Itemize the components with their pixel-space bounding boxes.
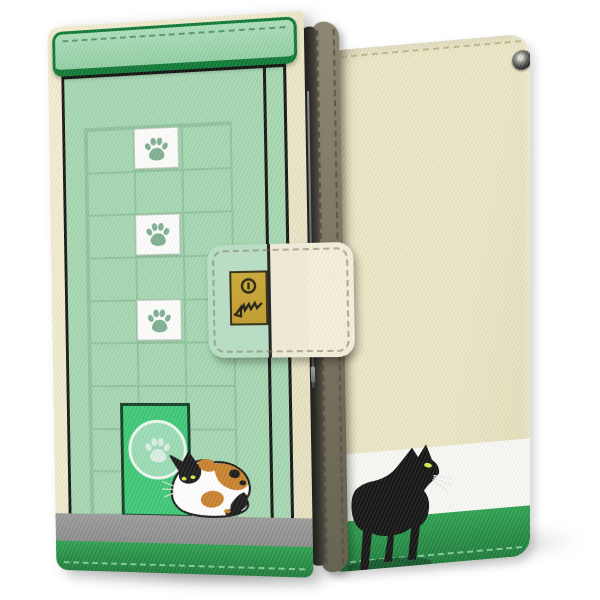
back-stitch-line [341, 40, 521, 58]
paw-print-icon [144, 305, 174, 335]
paw-print-icon [141, 133, 171, 164]
clasp-strap [207, 242, 355, 358]
strap-eyelet [512, 49, 530, 71]
black-cat-illustration [348, 430, 452, 572]
calico-cat-illustration [161, 443, 253, 520]
front-hem-stitch [64, 561, 305, 570]
paw-window [135, 213, 180, 255]
back-case [332, 33, 530, 572]
paw-window [137, 300, 182, 341]
power-button [311, 366, 315, 382]
black-cat-silhouette [351, 443, 439, 572]
clasp-stitch [212, 247, 350, 353]
paw-window [134, 127, 179, 170]
front-case [47, 8, 348, 579]
paw-print-icon [143, 219, 173, 250]
product-photo [0, 0, 600, 600]
awning-stitch [63, 26, 286, 42]
